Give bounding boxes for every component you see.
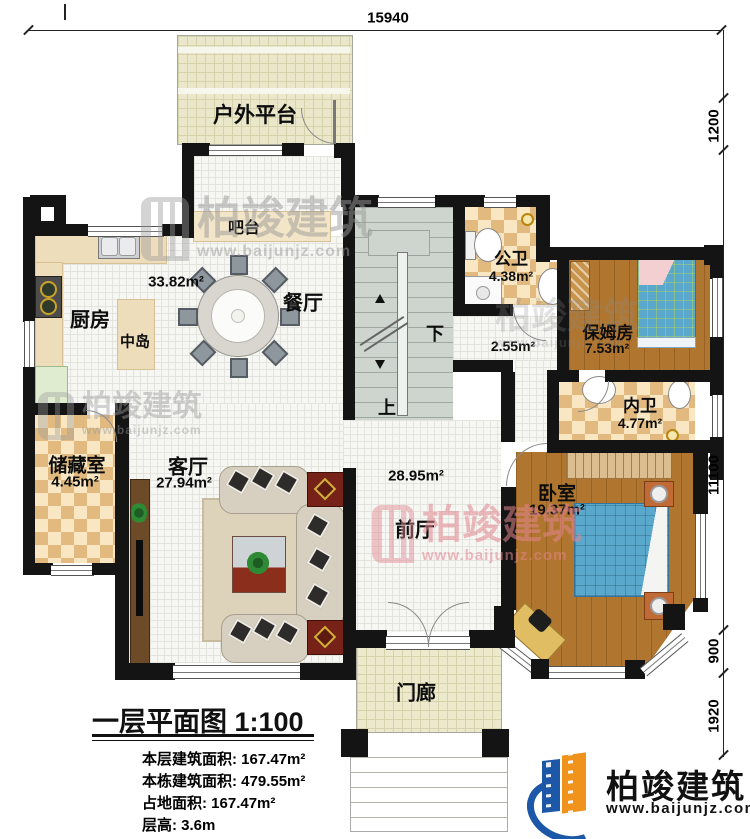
dim-line-right [723,30,724,757]
logo-building-blue-icon [542,759,560,813]
wall [182,143,210,156]
wall-corner [663,604,685,630]
wall-right [710,247,723,279]
cabinet-plant [131,502,147,524]
room-label-inner-bath: 内卫 [623,392,657,417]
wall [282,143,304,156]
wall [501,487,516,610]
room-label-public-bath: 公卫 [494,245,528,270]
stove-burner [40,281,57,298]
nanny-bed-blanket [639,259,692,285]
dim-line-top [28,30,722,31]
wall [453,304,513,316]
kitchen-sink-basin [101,237,118,256]
area-foyer: 28.95m² [388,468,444,485]
dining-chair [230,255,248,275]
storage-window [51,565,94,576]
bar-counter [193,211,331,242]
plan-scale: 1:100 [235,707,304,737]
wall [300,663,356,680]
stairs-arrow-down-icon [375,360,385,369]
stat-value: 479.55m² [241,773,305,790]
wall [453,360,513,372]
stat-label: 层高: [142,817,177,834]
wall [516,195,538,207]
room-label-bar: 吧台 [228,214,260,238]
stat-row: 本栋建筑面积: 479.55m² [142,770,305,791]
bedroom-window [695,514,706,598]
logo-building-orange-icon [562,752,586,813]
porch-pillar [482,729,509,757]
nanny-window [712,278,723,338]
porch-pillar [341,729,368,757]
stairs-down-label: 下 [426,320,444,346]
dim-right-1920: 1920 [706,699,723,732]
area-hall: 2.55m² [491,338,535,354]
wall [693,598,708,612]
fridge [35,366,68,405]
wall [115,403,129,675]
wall [605,370,712,382]
stat-value: 167.47m² [211,795,275,812]
title-underline [92,734,314,737]
stat-row: 本层建筑面积: 167.47m² [142,748,305,769]
wall-corner [531,659,549,679]
dim-ext-mark [64,4,66,20]
wall [343,630,387,648]
inner-bath-toilet-bowl [668,380,691,409]
shower-head-icon [476,286,490,300]
wall [469,630,515,648]
wall [557,258,569,374]
floor-plan: 户外平台 吧台 33.82m² 厨房 中岛 餐厅 公卫 4.38m² 下 2.5… [0,0,750,839]
dim-right-1200: 1200 [706,109,723,142]
stat-value: 167.47m² [241,751,305,768]
wall [355,195,379,207]
dim-right-900: 900 [706,638,723,663]
bedroom-bed-sheet [636,503,667,595]
stat-label: 本栋建筑面积: [142,773,237,790]
room-label-porch: 门廊 [396,677,436,706]
bar-window [209,145,283,156]
nightstand-lamp-icon [650,485,668,503]
dining-table-center [231,309,245,323]
kitchen-window [88,226,164,237]
table-plant [246,551,270,575]
stat-label: 占地面积: [142,795,207,812]
wall-right [710,337,723,396]
chimney-flue [41,207,54,221]
area-living: 27.94m² [156,475,212,492]
logo-url-text: www.baijunjz.com [606,800,750,817]
room-label-foyer: 前厅 [395,514,435,543]
area-storage: 4.45m² [51,474,99,491]
bay-window-bottom [549,666,627,679]
wall-spine [343,205,355,420]
stove-burner [40,298,57,315]
kitchen-side-window [24,321,35,368]
room-label-outdoor: 户外平台 [213,99,297,129]
dining-chair [178,308,198,326]
wall [453,206,465,306]
stat-row: 占地面积: 167.47m² [142,792,275,813]
bar-room-floor [194,156,340,212]
stat-label: 本层建筑面积: [142,751,237,768]
stat-value: 3.6m [181,817,215,834]
platform-band [178,47,350,53]
area-inner-bath: 4.77m² [618,415,662,431]
room-label-kitchen: 厨房 [70,304,110,333]
wall-left [23,367,35,575]
stairs-rail [397,252,408,416]
living-window [173,665,302,679]
wall-left [23,197,35,322]
tv [136,540,143,616]
company-logo [526,750,606,836]
wall [501,372,515,442]
inner-bath-window [712,395,723,438]
platform-band [178,88,350,94]
public-bath-window [484,197,517,208]
dim-right-11100: 11100 [706,455,723,495]
area-public-bath: 4.38m² [489,268,533,284]
stairs-up-label: 上 [378,394,396,420]
wall [182,143,194,238]
plan-title: 一层平面图 [92,707,227,737]
platform-door-leaf [333,100,336,144]
area-bedroom: 19.37m² [529,502,585,519]
wall [547,440,712,453]
nanny-wardrobe [570,261,590,311]
stairs-arrow-up-icon [375,294,385,303]
dim-top-label: 15940 [363,10,413,27]
dining-chair [230,358,248,378]
wall [92,563,129,575]
towel-ring-icon [521,213,534,226]
porch-steps [350,757,508,832]
area-open: 33.82m² [148,274,204,291]
room-label-island: 中岛 [120,331,150,352]
room-label-dining: 餐厅 [283,287,323,316]
wall [30,224,88,236]
stat-row: 层高: 3.6m [142,814,215,835]
wall-spine [341,143,355,207]
bedroom-wardrobe [566,452,672,479]
stairs-window [378,197,436,208]
title-underline-thin [92,740,314,741]
kitchen-sink-basin [119,237,136,256]
nanny-bed-footboard [637,337,696,348]
area-nanny: 7.53m² [585,340,629,356]
wall [547,247,712,260]
